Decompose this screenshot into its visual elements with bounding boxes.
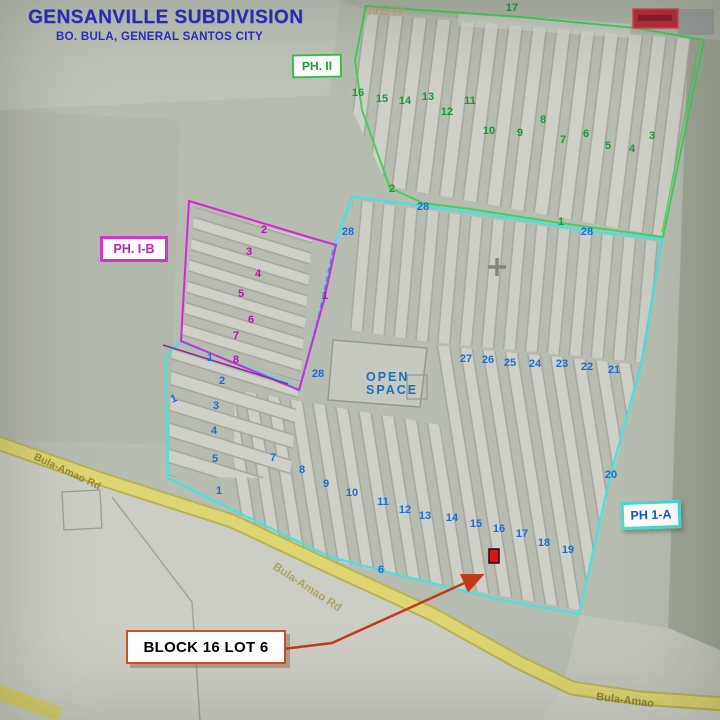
lot-number-green: 9 [517, 127, 523, 139]
lot-number-green: 1 [558, 216, 564, 228]
lot-number-blue: 10 [346, 487, 358, 499]
lot-number-blue: 13 [419, 510, 431, 522]
lot-number-blue: 12 [399, 504, 411, 516]
lot-number-blue: 1 [207, 352, 213, 364]
lot-number-green: 6 [583, 128, 589, 140]
lot-number-green: 4 [629, 143, 635, 155]
lot-number-blue: 9 [323, 478, 329, 490]
lot-number-green: 15 [376, 93, 388, 105]
lot-number-green: 11 [464, 95, 476, 107]
lot-number-blue: 25 [504, 357, 516, 369]
target-lot-marker [489, 549, 499, 563]
phase-1b-label: PH. I-B [100, 236, 168, 262]
lot-number-blue: 3 [213, 400, 219, 412]
map-drawing [0, 0, 720, 720]
lot-number-blue: 1 [216, 485, 222, 497]
lot-number-magenta: 3 [246, 246, 252, 258]
lot-number-magenta: 1 [322, 290, 328, 302]
block-lot-callout-text: BLOCK 16 LOT 6 [143, 639, 268, 656]
lot-number-green: 2 [389, 183, 395, 195]
lot-number-green: 5 [605, 140, 611, 152]
lot-number-blue: 22 [581, 361, 593, 373]
lot-number-green: 17 [506, 2, 518, 14]
lot-number-magenta: 2 [261, 224, 267, 236]
lot-number-blue: 28 [312, 368, 324, 380]
new-watermark: NEW [368, 2, 406, 19]
lot-number-blue: 11 [377, 496, 389, 508]
lot-number-blue: 28 [417, 201, 429, 213]
lot-number-blue: 23 [556, 358, 568, 370]
lot-number-blue: 8 [299, 464, 305, 476]
lot-number-blue: 2 [219, 375, 225, 387]
lot-number-blue: 28 [581, 226, 593, 238]
phase-2-label: PH. II [292, 54, 342, 79]
lot-number-green: 7 [560, 134, 566, 146]
lot-number-blue: 21 [608, 364, 620, 376]
lot-number-magenta: 8 [233, 354, 239, 366]
lot-number-magenta: 5 [238, 288, 244, 300]
subdivision-map: GENSANVILLE SUBDIVISION BO. BULA, GENERA… [0, 0, 720, 720]
lot-number-blue: 7 [270, 452, 276, 464]
lot-number-blue: 19 [562, 544, 574, 556]
lot-number-green: 3 [649, 130, 655, 142]
lot-number-green: 12 [441, 106, 453, 118]
lot-number-blue: 16 [493, 523, 505, 535]
photo-gray-patch [678, 9, 714, 35]
open-space-label: OPEN SPACE [366, 371, 418, 397]
lot-number-blue: 18 [538, 537, 550, 549]
block-lot-callout: BLOCK 16 LOT 6 [126, 630, 286, 664]
lot-number-blue: 15 [470, 518, 482, 530]
lot-number-magenta: 7 [233, 330, 239, 342]
lot-number-blue: 6 [378, 564, 384, 576]
lot-number-blue: 24 [529, 358, 541, 370]
lot-number-magenta: 4 [255, 268, 261, 280]
lot-number-blue: 17 [516, 528, 528, 540]
lot-number-green: 8 [540, 114, 546, 126]
lot-number-blue: 26 [482, 354, 494, 366]
phase-1a-label: PH 1-A [621, 500, 682, 530]
lot-number-green: 16 [352, 87, 364, 99]
lot-number-green: 13 [422, 91, 434, 103]
lot-number-blue: 4 [211, 425, 217, 437]
lot-number-green: 10 [483, 125, 495, 137]
lot-number-blue: 5 [212, 453, 218, 465]
lot-number-blue: 20 [605, 469, 617, 481]
lot-number-blue: 14 [446, 512, 458, 524]
map-title: GENSANVILLE SUBDIVISION [28, 7, 303, 29]
lot-number-magenta: 6 [248, 314, 254, 326]
map-subtitle: BO. BULA, GENERAL SANTOS CITY [56, 31, 263, 43]
lot-number-blue: 27 [460, 353, 472, 365]
lot-number-blue: 28 [342, 226, 354, 238]
lot-number-green: 14 [399, 95, 411, 107]
